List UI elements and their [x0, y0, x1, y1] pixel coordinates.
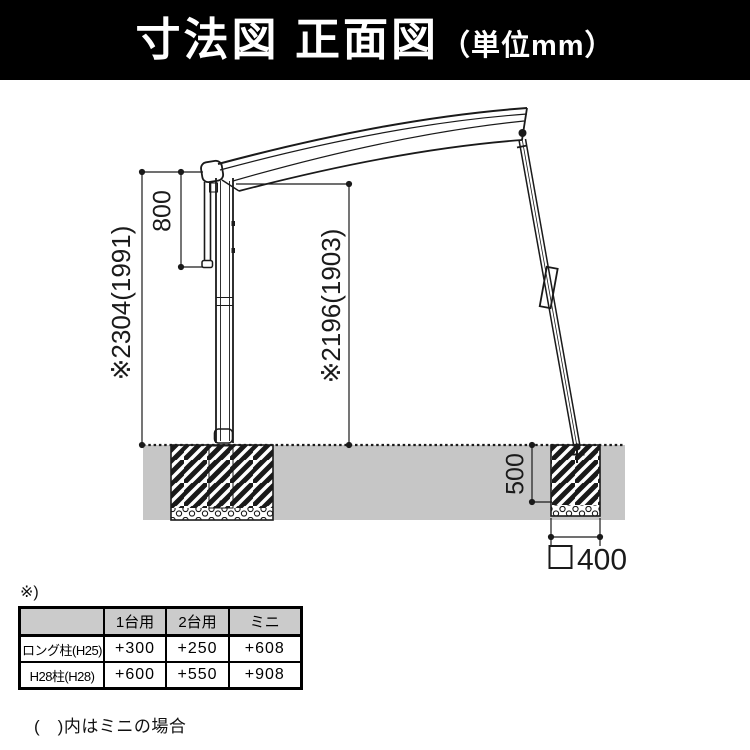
row-label-long-post: ロング柱(H25): [20, 636, 105, 663]
dim-clearance-height: ※2196(1903): [236, 181, 352, 448]
dim-upper-section: 800: [149, 169, 203, 270]
col-header-double: 2台用: [166, 608, 229, 636]
dim-label-upper-section: 800: [149, 190, 177, 232]
table-row: ロング柱(H25) +300 +250 +608: [20, 636, 302, 663]
table-note-mark: ※): [20, 582, 39, 602]
support-strut: [517, 129, 585, 463]
dim-foundation-width: 400: [548, 518, 627, 577]
cell-value: +250: [166, 636, 229, 663]
cell-value: +550: [166, 662, 229, 689]
cell-value: +300: [104, 636, 166, 663]
row-label-h28-post: H28柱(H28): [20, 662, 105, 689]
footnote: ( )内はミニの場合: [34, 712, 186, 737]
dim-label-overall-height: ※2304(1991): [106, 226, 136, 381]
cell-value: +608: [229, 636, 301, 663]
cell-value: +908: [229, 662, 301, 689]
roof-beam: [200, 108, 527, 191]
support-post: [215, 178, 236, 443]
left-foundation-gravel: [171, 508, 273, 520]
left-foundation: [171, 445, 273, 520]
cell-value: +600: [104, 662, 166, 689]
left-foundation-concrete-hatch: [171, 445, 273, 508]
right-foundation: [551, 445, 600, 516]
dim-label-clearance-height: ※2196(1903): [316, 229, 346, 384]
col-header-mini: ミニ: [229, 608, 301, 636]
right-foundation-gravel: [551, 505, 600, 516]
dim-label-foundation-width: 400: [577, 544, 627, 577]
table-row: H28柱(H28) +600 +550 +908: [20, 662, 302, 689]
square-section-symbol: [550, 546, 572, 568]
spec-table-header-row: 1台用 2台用 ミニ: [20, 608, 302, 636]
strut-top-joint: [519, 129, 527, 137]
spec-table: 1台用 2台用 ミニ ロング柱(H25) +300 +250 +608 H28柱…: [18, 606, 303, 690]
dim-label-foundation-depth: 500: [502, 453, 530, 495]
col-header-single: 1台用: [104, 608, 166, 636]
table-corner-cell: [20, 608, 105, 636]
roof-rear-cap: [200, 160, 224, 183]
